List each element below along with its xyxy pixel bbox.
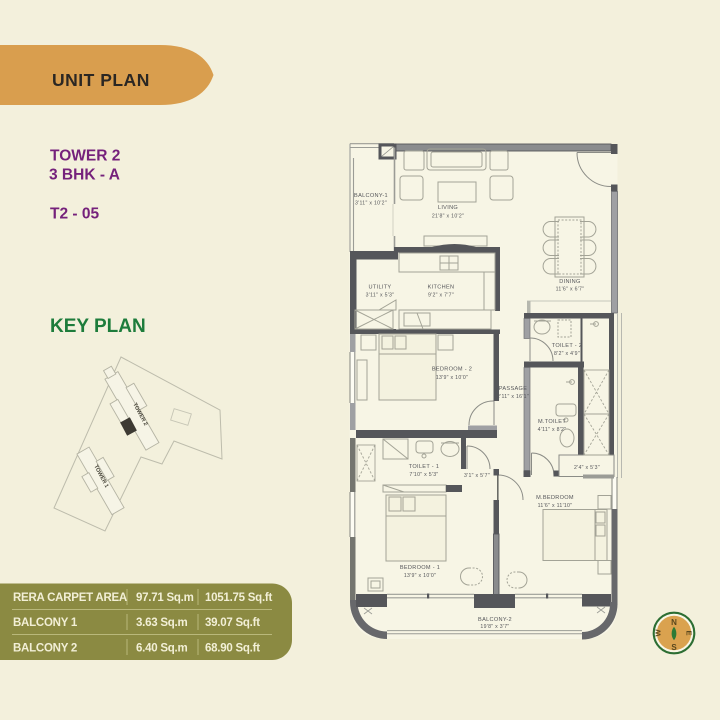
svg-text:TOWER 2: TOWER 2 bbox=[50, 148, 120, 165]
svg-text:BALCONY 2: BALCONY 2 bbox=[13, 643, 77, 655]
svg-text:19'8" x 3'7": 19'8" x 3'7" bbox=[480, 624, 509, 630]
svg-text:9'2" x 7'7": 9'2" x 7'7" bbox=[428, 293, 454, 299]
svg-text:BEDROOM - 2: BEDROOM - 2 bbox=[432, 367, 472, 373]
svg-text:3.63 Sq.m: 3.63 Sq.m bbox=[136, 617, 187, 629]
svg-text:RERA CARPET AREA: RERA CARPET AREA bbox=[13, 592, 127, 604]
svg-text:DINING: DINING bbox=[559, 279, 580, 285]
svg-text:2'11" x 16'1": 2'11" x 16'1" bbox=[497, 394, 529, 400]
svg-text:BALCONY 1: BALCONY 1 bbox=[13, 617, 78, 629]
svg-text:3'11" x 10'2": 3'11" x 10'2" bbox=[355, 201, 387, 207]
svg-text:M.TOILET: M.TOILET bbox=[538, 419, 566, 425]
svg-text:M.BEDROOM: M.BEDROOM bbox=[536, 495, 574, 501]
svg-text:68.90 Sq.ft: 68.90 Sq.ft bbox=[205, 643, 260, 655]
svg-text:PASSAGE: PASSAGE bbox=[499, 386, 527, 392]
svg-text:UTILITY: UTILITY bbox=[369, 285, 392, 291]
svg-text:S: S bbox=[671, 643, 677, 652]
svg-text:KITCHEN: KITCHEN bbox=[428, 285, 455, 291]
svg-text:UNIT PLAN: UNIT PLAN bbox=[52, 70, 150, 90]
svg-text:BALCONY-2: BALCONY-2 bbox=[478, 617, 512, 623]
svg-text:BEDROOM - 1: BEDROOM - 1 bbox=[400, 565, 440, 571]
svg-text:2'4" x 5'3": 2'4" x 5'3" bbox=[574, 465, 600, 471]
svg-text:W: W bbox=[653, 629, 662, 637]
svg-text:E: E bbox=[685, 630, 694, 635]
svg-text:3'1" x 5'7": 3'1" x 5'7" bbox=[464, 473, 490, 479]
svg-text:1051.75 Sq.ft: 1051.75 Sq.ft bbox=[205, 592, 272, 604]
svg-text:LIVING: LIVING bbox=[438, 205, 458, 211]
svg-text:TOILET - 1: TOILET - 1 bbox=[409, 464, 439, 470]
svg-text:13'9" x 10'0": 13'9" x 10'0" bbox=[436, 375, 468, 381]
svg-text:4'11" x 8'2": 4'11" x 8'2" bbox=[538, 427, 567, 433]
svg-text:11'6" x 6'7": 11'6" x 6'7" bbox=[556, 287, 585, 293]
svg-text:97.71 Sq.m: 97.71 Sq.m bbox=[136, 592, 194, 604]
svg-text:6.40 Sq.m: 6.40 Sq.m bbox=[136, 643, 187, 655]
svg-text:13'9" x 10'0": 13'9" x 10'0" bbox=[404, 573, 436, 579]
svg-text:21'8" x 10'2": 21'8" x 10'2" bbox=[432, 214, 464, 220]
svg-text:N: N bbox=[671, 618, 677, 627]
svg-text:11'6" x 11'10": 11'6" x 11'10" bbox=[538, 503, 573, 509]
svg-text:TOILET - 2: TOILET - 2 bbox=[552, 343, 582, 349]
svg-text:8'2" x 4'9": 8'2" x 4'9" bbox=[554, 351, 580, 357]
svg-text:KEY PLAN: KEY PLAN bbox=[50, 316, 146, 337]
svg-text:BALCONY-1: BALCONY-1 bbox=[354, 193, 388, 199]
svg-text:3 BHK - A: 3 BHK - A bbox=[49, 167, 120, 184]
svg-text:3'11" x 5'3": 3'11" x 5'3" bbox=[366, 293, 395, 299]
svg-text:T2 - 05: T2 - 05 bbox=[50, 206, 99, 223]
svg-text:39.07 Sq.ft: 39.07 Sq.ft bbox=[205, 617, 260, 629]
svg-text:7'10" x 5'3": 7'10" x 5'3" bbox=[409, 472, 438, 478]
